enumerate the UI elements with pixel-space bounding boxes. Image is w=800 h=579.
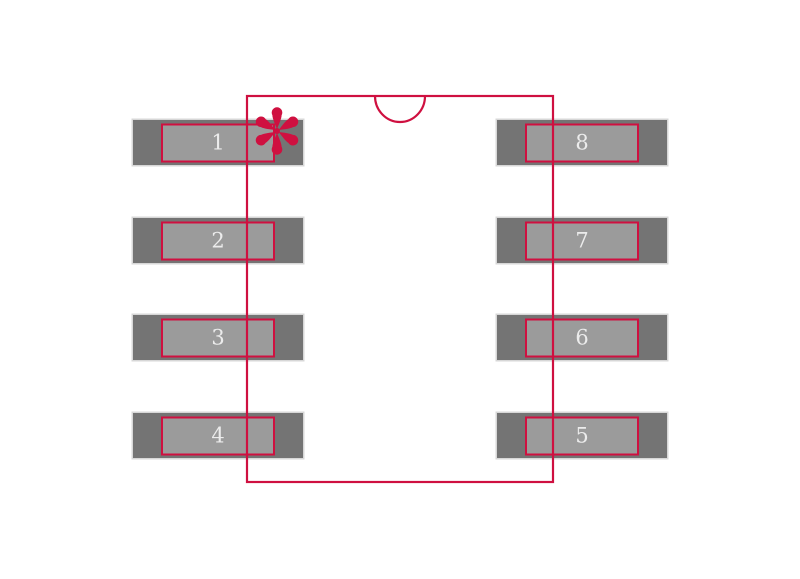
pad-1-outline: 1 [161,123,275,162]
pad-number: 1 [211,132,224,153]
pad-3: 3 [133,315,303,360]
pad-2-outline: 2 [161,221,275,260]
pad-number: 6 [575,327,588,348]
pad-number: 2 [211,230,224,251]
pad-7-outline: 7 [525,221,639,260]
pad-number: 5 [575,425,588,446]
pad-8-outline: 8 [525,123,639,162]
package-outline-layer [0,0,800,579]
pad-4: 4 [133,413,303,458]
pin1-notch [375,96,425,122]
pad-3-outline: 3 [161,318,275,357]
pad-6: 6 [497,315,667,360]
pad-8: 8 [497,120,667,165]
pad-1: 1 [133,120,303,165]
pad-number: 7 [575,230,588,251]
pad-number: 8 [575,132,588,153]
pad-4-outline: 4 [161,416,275,455]
pad-2: 2 [133,218,303,263]
pad-5: 5 [497,413,667,458]
pad-6-outline: 6 [525,318,639,357]
pad-7: 7 [497,218,667,263]
pad-number: 3 [211,327,224,348]
pad-5-outline: 5 [525,416,639,455]
footprint-diagram: 1 2 3 4 8 7 6 5 [0,0,800,579]
pad-number: 4 [211,425,224,446]
